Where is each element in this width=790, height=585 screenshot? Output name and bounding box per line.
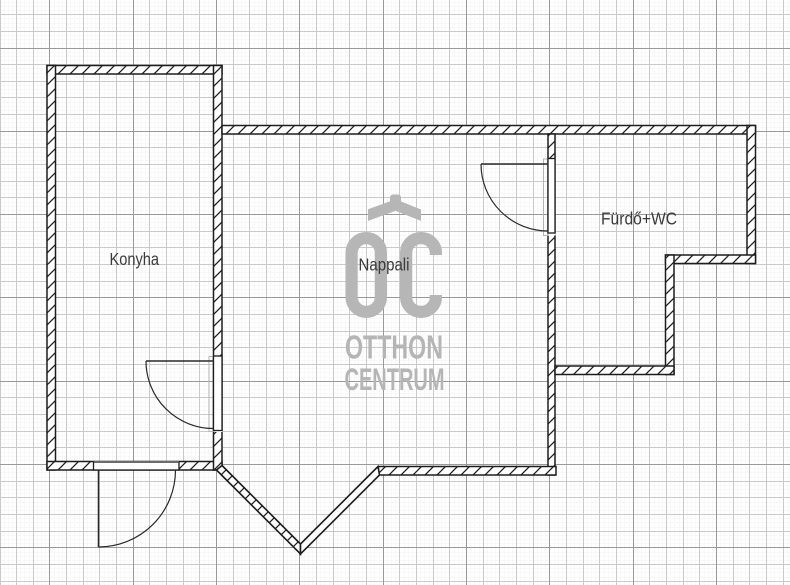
svg-text:CENTRUM: CENTRUM xyxy=(345,362,445,397)
svg-text:Fürdő+WC: Fürdő+WC xyxy=(601,209,677,229)
svg-text:Nappali: Nappali xyxy=(359,255,410,275)
svg-text:OTTHON: OTTHON xyxy=(345,329,443,366)
svg-text:Konyha: Konyha xyxy=(110,249,160,269)
